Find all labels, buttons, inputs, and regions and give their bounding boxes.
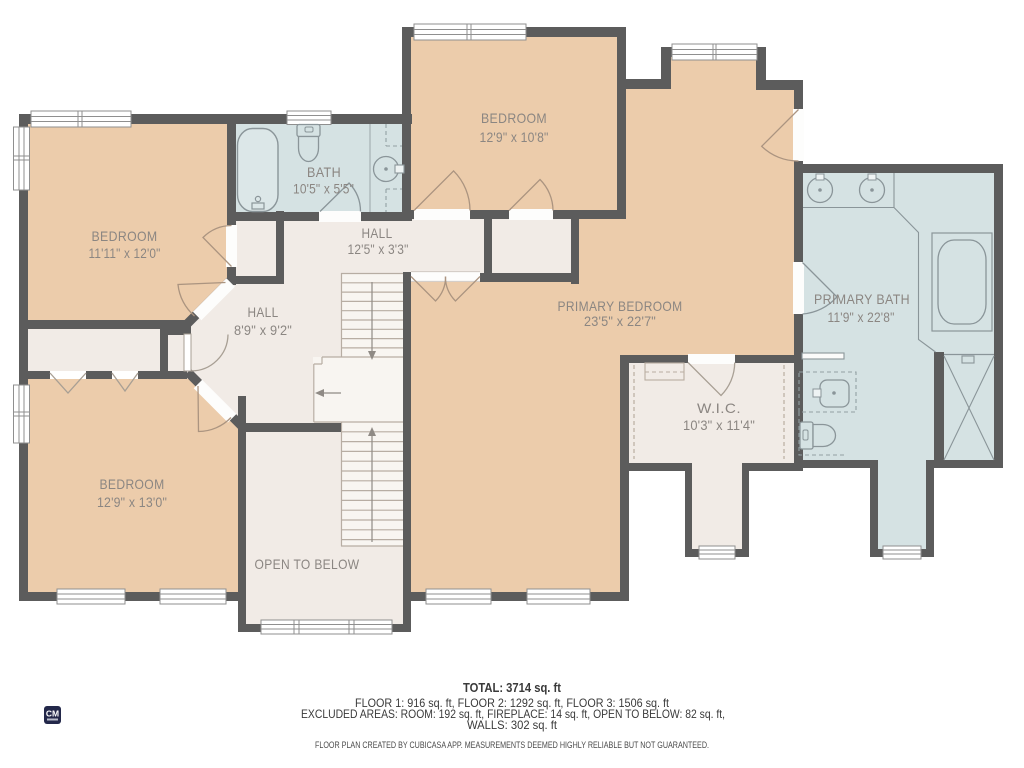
svg-text:8'9" x 9'2": 8'9" x 9'2": [234, 323, 292, 338]
svg-text:BEDROOM: BEDROOM: [92, 228, 158, 244]
svg-text:BEDROOM: BEDROOM: [481, 110, 547, 126]
svg-text:12'9" x 10'8": 12'9" x 10'8": [480, 130, 549, 145]
svg-text:10'3" x 11'4": 10'3" x 11'4": [683, 418, 755, 433]
svg-text:BEDROOM: BEDROOM: [100, 476, 165, 492]
svg-text:HALL: HALL: [248, 304, 279, 320]
svg-text:PRIMARY BEDROOM: PRIMARY BEDROOM: [558, 298, 683, 314]
svg-text:11'9" x 22'8": 11'9" x 22'8": [828, 310, 895, 325]
svg-text:CM: CM: [46, 709, 59, 719]
svg-text:11'11" x 12'0": 11'11" x 12'0": [89, 246, 161, 261]
svg-text:12'5" x 3'3": 12'5" x 3'3": [348, 242, 409, 257]
svg-text:FLOOR PLAN CREATED BY CUBICASA: FLOOR PLAN CREATED BY CUBICASA APP. MEAS…: [315, 740, 709, 750]
svg-text:PRIMARY BATH: PRIMARY BATH: [814, 291, 910, 307]
svg-text:HALL: HALL: [362, 225, 393, 241]
svg-text:BATH: BATH: [307, 164, 341, 180]
svg-text:TOTAL: 3714 sq. ft: TOTAL: 3714 sq. ft: [463, 680, 562, 695]
svg-text:12'9" x 13'0": 12'9" x 13'0": [97, 495, 167, 510]
svg-text:23'5" x 22'7": 23'5" x 22'7": [584, 314, 656, 329]
svg-text:WALLS: 302 sq. ft: WALLS: 302 sq. ft: [467, 718, 558, 732]
svg-text:OPEN TO BELOW: OPEN TO BELOW: [255, 556, 360, 572]
svg-text:10'5" x 5'5": 10'5" x 5'5": [293, 182, 354, 197]
svg-text:W.I.C.: W.I.C.: [697, 400, 741, 416]
